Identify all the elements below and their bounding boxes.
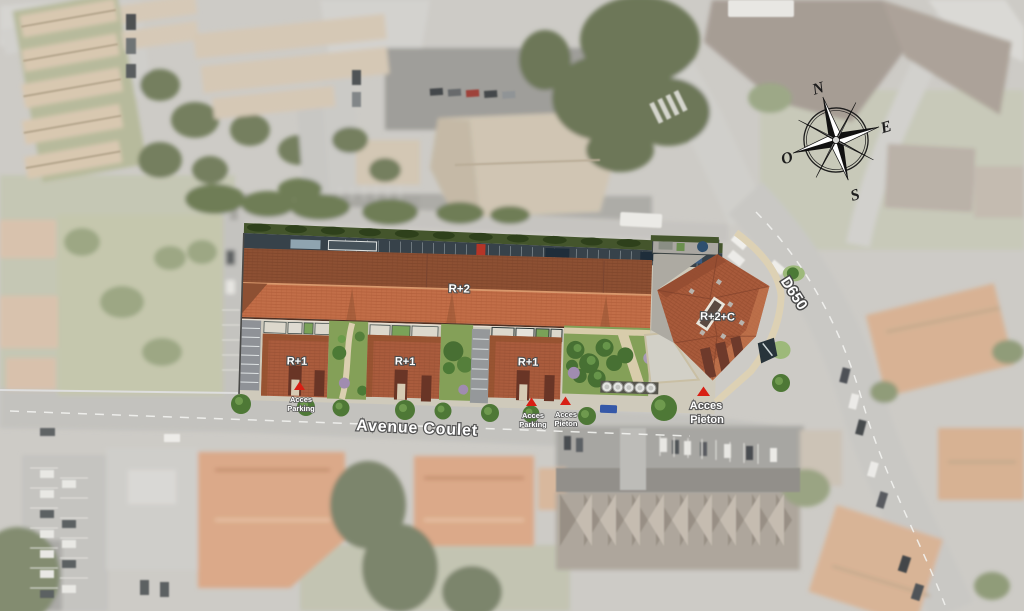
svg-text:Pieton: Pieton [690, 414, 724, 426]
svg-text:R+2+C: R+2+C [700, 311, 735, 324]
svg-text:Parking: Parking [287, 404, 315, 413]
svg-text:Acces: Acces [290, 395, 312, 404]
svg-text:Parking: Parking [519, 420, 547, 429]
svg-text:Acces: Acces [555, 410, 577, 419]
svg-text:Acces: Acces [690, 400, 722, 412]
svg-text:R+1: R+1 [518, 356, 539, 369]
svg-text:R+1: R+1 [287, 355, 308, 368]
svg-text:Pieton: Pieton [555, 419, 578, 428]
svg-text:R+2: R+2 [448, 283, 470, 296]
svg-text:Acces: Acces [522, 411, 544, 420]
svg-text:R+1: R+1 [395, 356, 416, 369]
